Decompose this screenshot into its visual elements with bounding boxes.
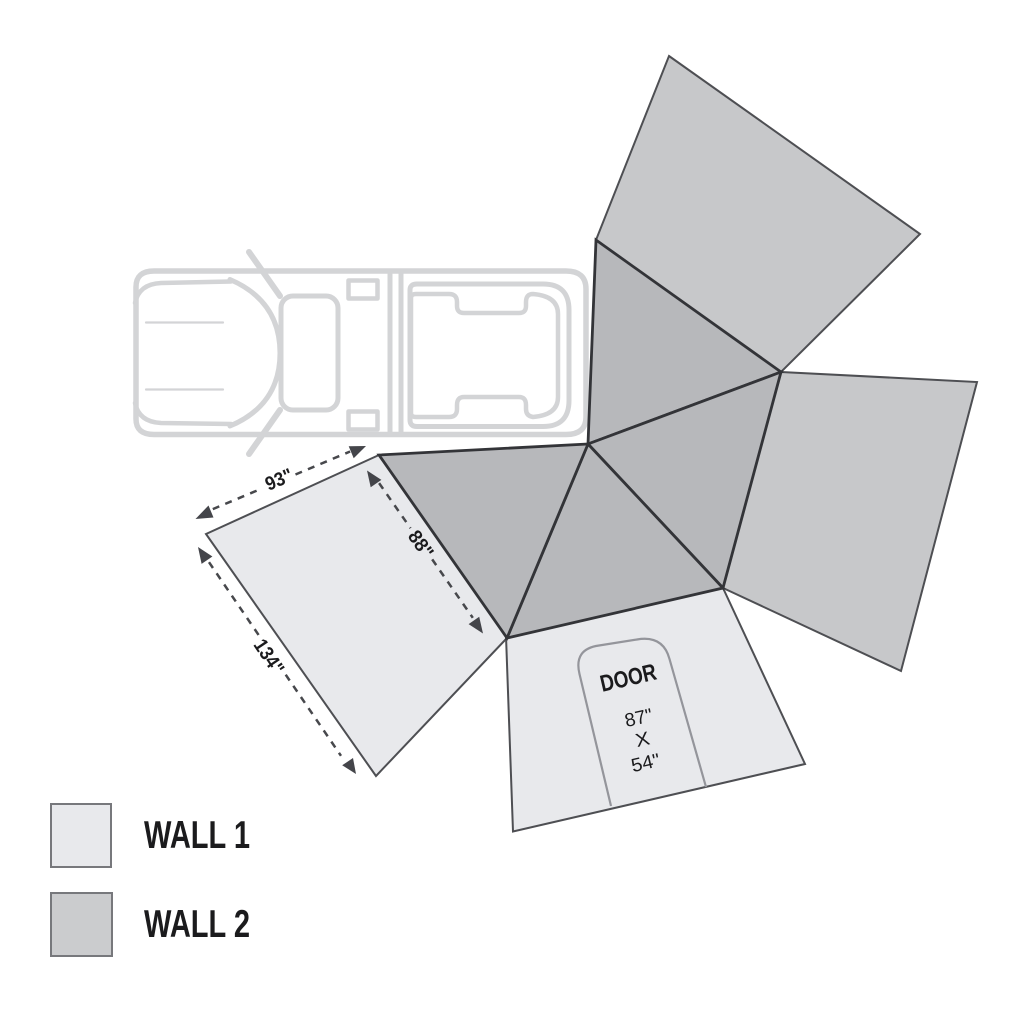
svg-text:WALL 2: WALL 2 [144, 903, 250, 946]
svg-text:WALL 1: WALL 1 [144, 814, 250, 857]
